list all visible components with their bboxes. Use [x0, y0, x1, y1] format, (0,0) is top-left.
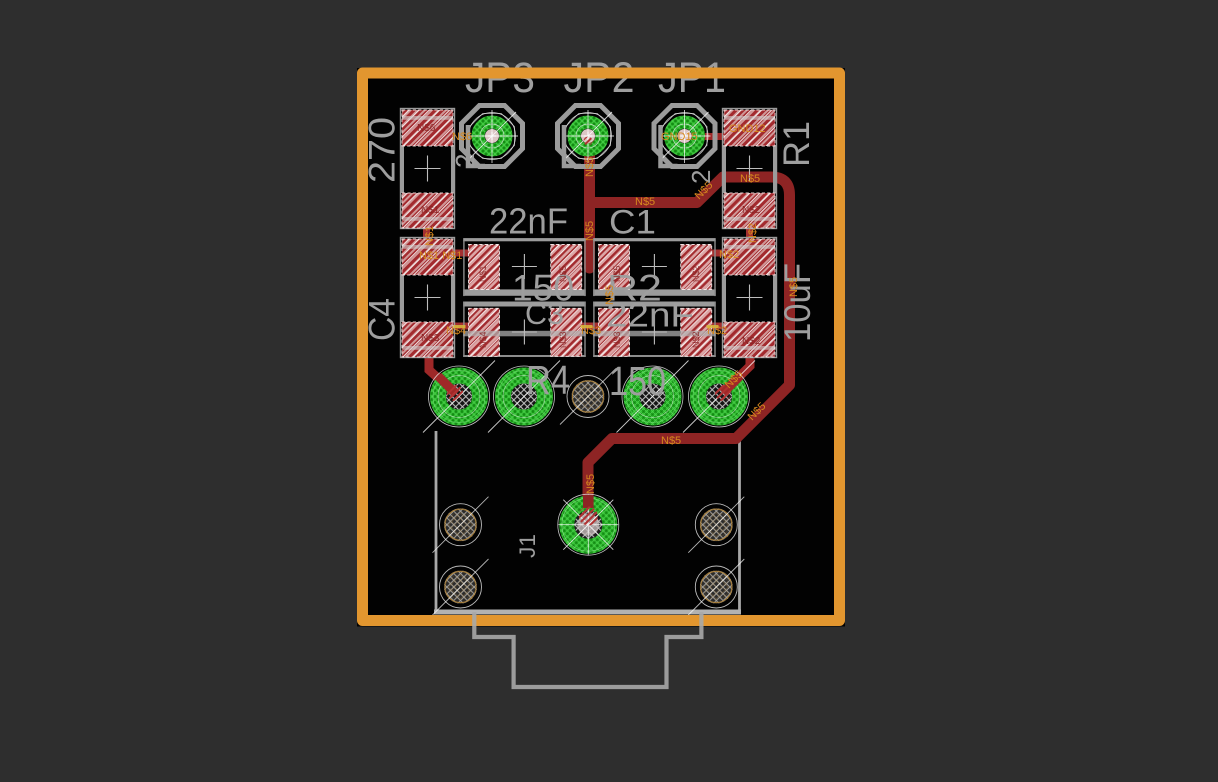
- svg-text:2: 2: [450, 154, 480, 168]
- svg-text:N$4: N$4: [478, 331, 488, 348]
- svg-text:N$2: N$2: [691, 265, 701, 282]
- svg-text:N$5: N$5: [584, 221, 596, 241]
- svg-text:N$5: N$5: [788, 277, 800, 297]
- svg-text:N$5: N$5: [584, 157, 596, 177]
- svg-text:GND12: GND12: [729, 123, 766, 135]
- svg-text:150: 150: [609, 358, 666, 404]
- svg-text:N$2: N$2: [719, 249, 739, 261]
- svg-text:10uF: 10uF: [777, 263, 818, 342]
- svg-text:N$2: N$2: [742, 336, 761, 347]
- svg-text:N$3: N$3: [421, 333, 440, 344]
- svg-text:N$1: N$1: [424, 226, 436, 246]
- svg-text:R4: R4: [526, 357, 570, 403]
- svg-text:N$3: N$3: [612, 331, 622, 348]
- svg-text:N$5: N$5: [635, 196, 655, 208]
- svg-text:J1: J1: [515, 534, 540, 558]
- svg-text:N$5: N$5: [604, 285, 616, 305]
- svg-text:22nF: 22nF: [489, 201, 568, 242]
- svg-text:N$2: N$2: [742, 205, 761, 216]
- svg-text:N$2: N$2: [691, 331, 701, 348]
- svg-text:N$2: N$2: [747, 223, 759, 243]
- svg-text:N$5: N$5: [612, 265, 622, 282]
- svg-text:N$5: N$5: [585, 474, 597, 494]
- svg-text:N$5: N$5: [558, 265, 568, 282]
- svg-text:N$5: N$5: [661, 435, 681, 447]
- svg-text:N$1: N$1: [421, 205, 440, 216]
- svg-text:N$6: N$6: [417, 123, 436, 134]
- svg-text:GND15: GND15: [661, 131, 698, 143]
- svg-text:C3: C3: [525, 296, 564, 331]
- svg-text:N$5: N$5: [740, 173, 760, 185]
- svg-text:N$3: N$3: [558, 331, 568, 348]
- svg-text:N$6: N$6: [452, 131, 472, 143]
- svg-text:R1: R1: [776, 121, 817, 167]
- svg-text:N$1 N$1: N$1 N$1: [419, 250, 462, 262]
- svg-text:C1: C1: [609, 204, 656, 242]
- svg-text:N$1: N$1: [478, 265, 488, 282]
- svg-text:22nF: 22nF: [606, 297, 694, 335]
- svg-text:2: 2: [686, 170, 716, 184]
